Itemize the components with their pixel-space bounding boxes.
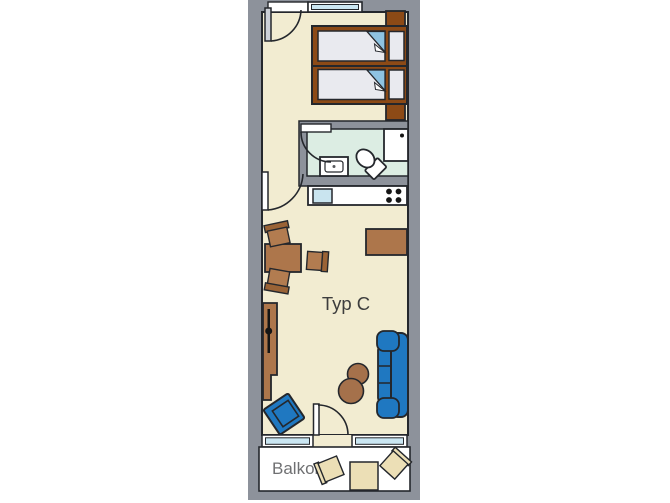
sideboard bbox=[366, 229, 407, 255]
twin-bed-1 bbox=[312, 26, 407, 66]
floor-plan: Typ C Balkon bbox=[0, 0, 670, 503]
unit-type-label: Typ C bbox=[322, 293, 370, 314]
twin-bed-2 bbox=[312, 66, 407, 104]
kitchen-sink bbox=[313, 189, 332, 203]
side-table bbox=[339, 379, 364, 404]
washbasin bbox=[320, 157, 348, 176]
kitchenette bbox=[308, 186, 407, 205]
floor-plan-drawing: Typ C Balkon bbox=[0, 0, 670, 503]
nightstand bbox=[386, 11, 405, 26]
bed-pillow bbox=[389, 32, 404, 61]
hall-door-leaf bbox=[262, 172, 268, 210]
balcony-door-opening bbox=[313, 435, 352, 447]
sofa-armrest bbox=[377, 398, 399, 418]
shower-drain bbox=[400, 134, 404, 138]
sofa bbox=[377, 331, 408, 418]
entrance-door-leaf bbox=[265, 8, 271, 41]
shower bbox=[384, 129, 408, 161]
chair-right bbox=[306, 250, 328, 271]
wardrobe-knob bbox=[265, 328, 272, 335]
window-bottom-right-glass bbox=[356, 438, 404, 445]
bed-pillow bbox=[389, 70, 404, 99]
nightstand bbox=[386, 104, 405, 120]
entrance-opening bbox=[268, 2, 308, 12]
bathroom-door-leaf bbox=[301, 124, 331, 132]
sofa-armrest bbox=[377, 331, 399, 351]
window-bottom-left-glass bbox=[266, 438, 310, 445]
window-top-glass bbox=[312, 5, 359, 10]
balcony-table bbox=[350, 462, 378, 490]
balcony-door-leaf bbox=[314, 404, 320, 435]
